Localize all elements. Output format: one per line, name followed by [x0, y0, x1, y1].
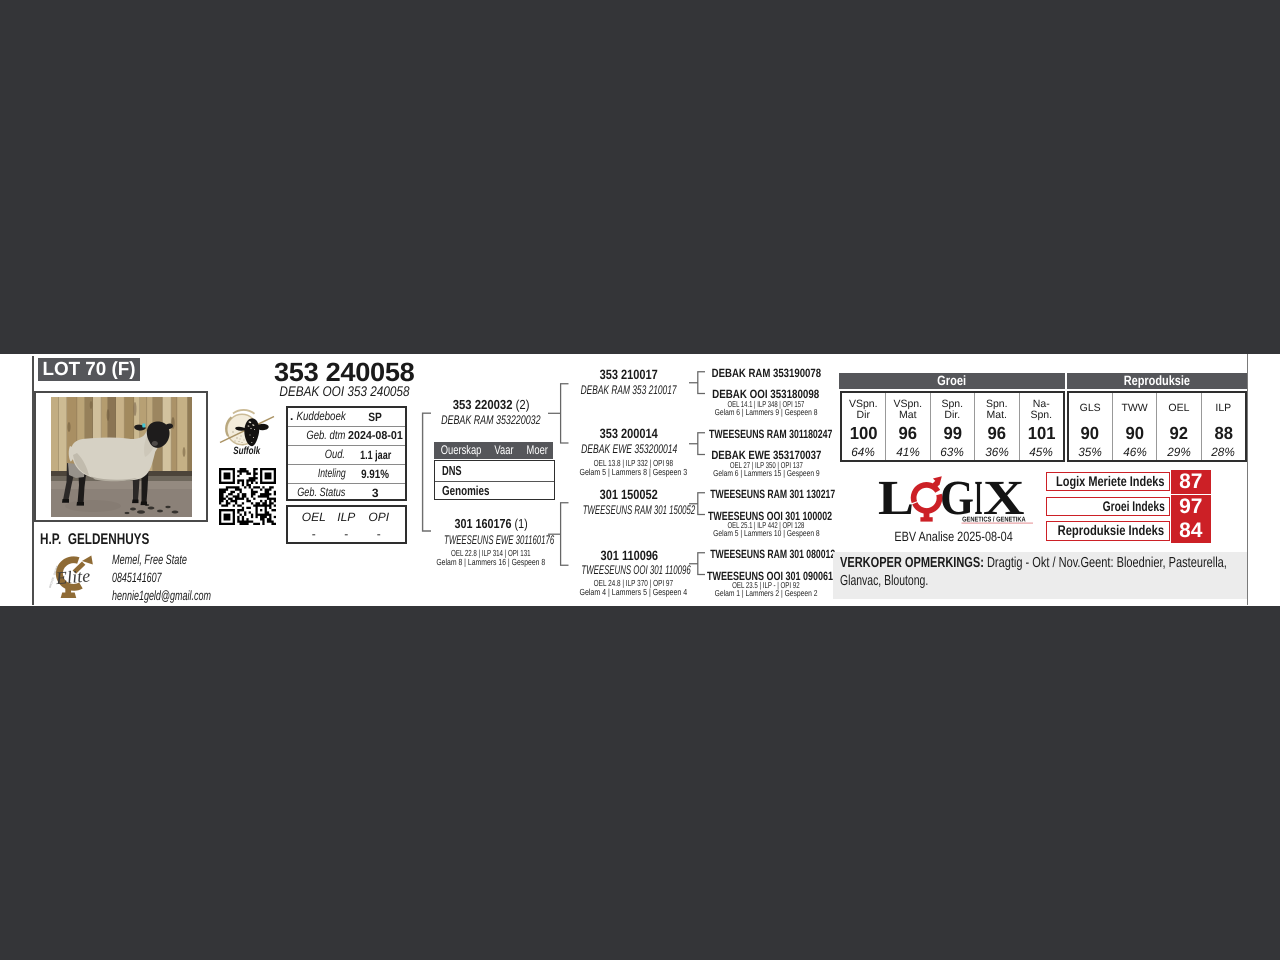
svg-text:Elite: Elite [54, 565, 91, 588]
svg-text:L: L [878, 474, 914, 525]
svg-text:GENETICS / GENETIKA: GENETICS / GENETIKA [962, 515, 1026, 523]
